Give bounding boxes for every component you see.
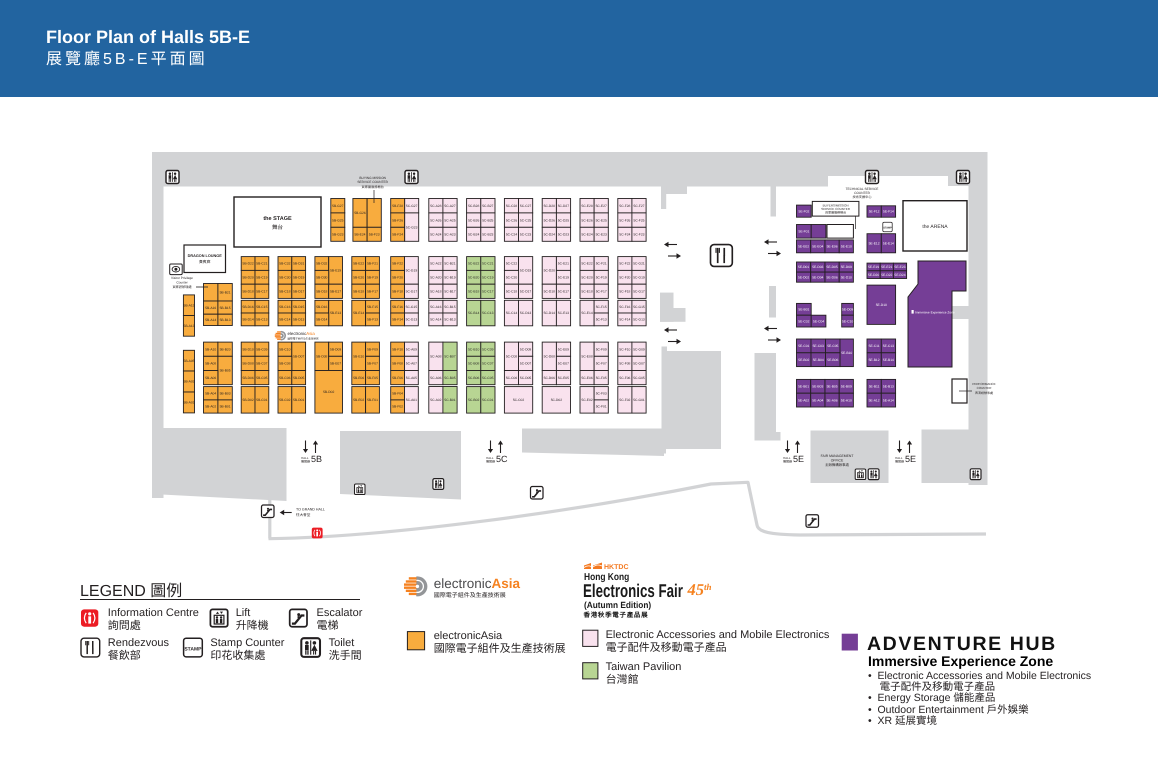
svg-text:STAMP: STAMP: [184, 647, 202, 653]
svg-text:HKTDC: HKTDC: [604, 564, 629, 571]
